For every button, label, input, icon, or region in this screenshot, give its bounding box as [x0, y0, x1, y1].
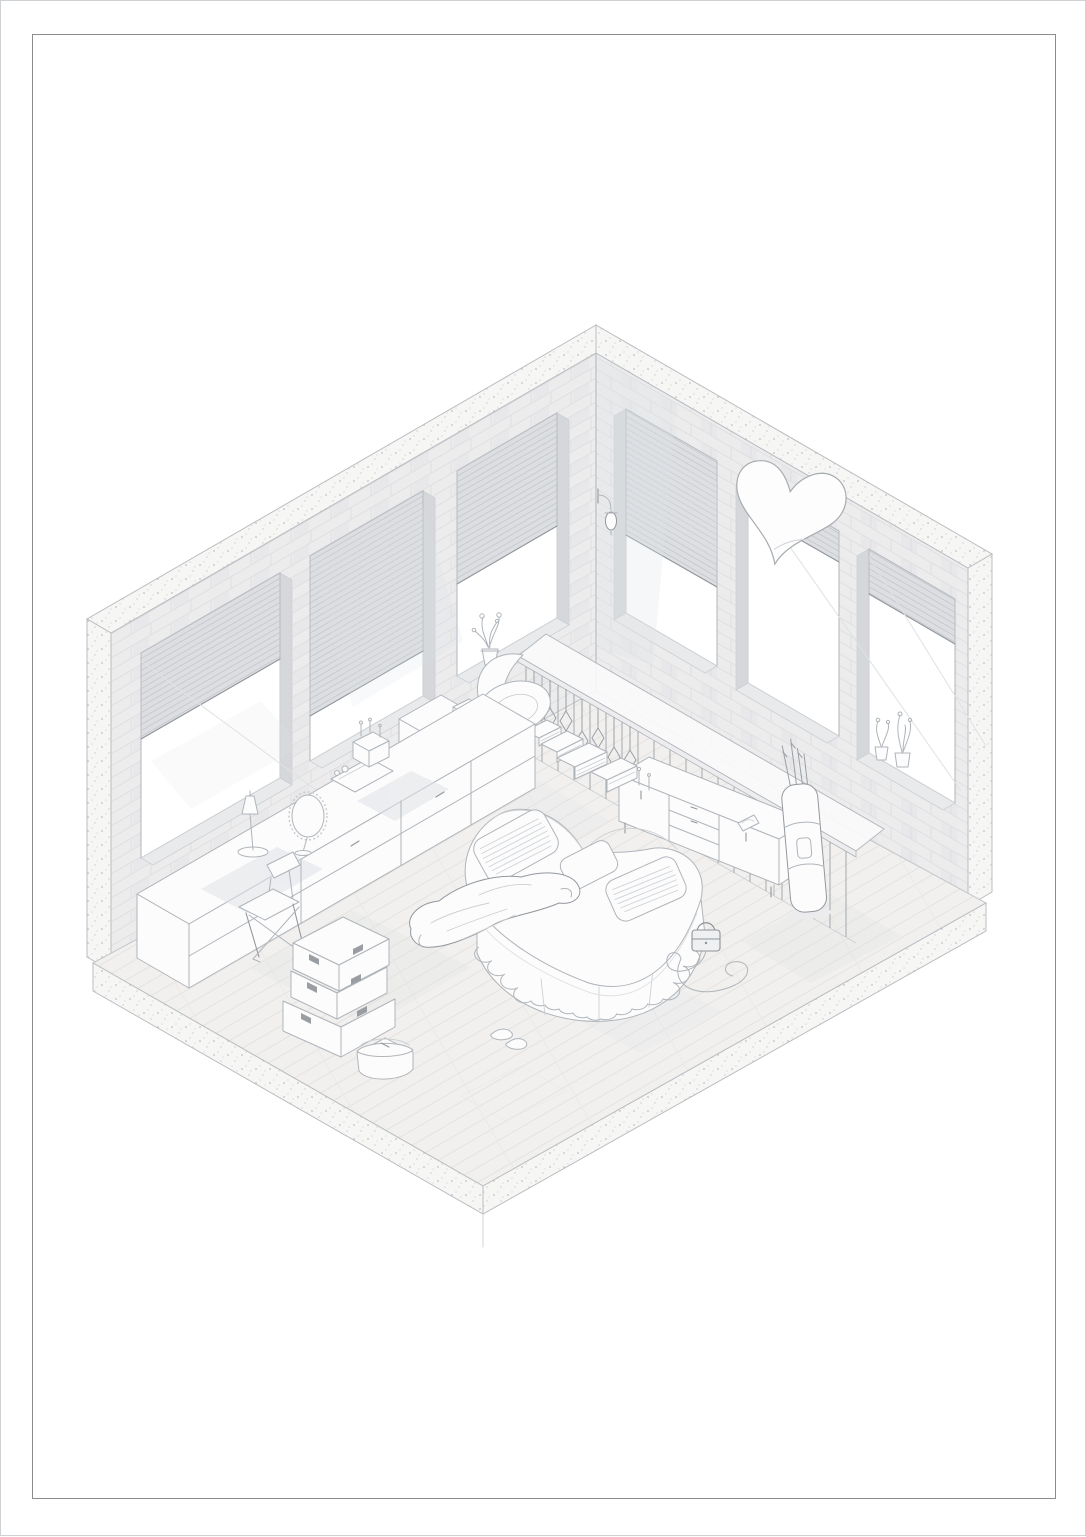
room-cutaway [87, 325, 992, 1247]
window-jamb [557, 413, 569, 625]
end-cut-left [87, 619, 111, 971]
end-cut-right [968, 554, 992, 906]
isometric-room-drawing [1, 1, 1086, 1537]
window-jamb [857, 549, 869, 760]
paper-sheet [0, 0, 1086, 1536]
